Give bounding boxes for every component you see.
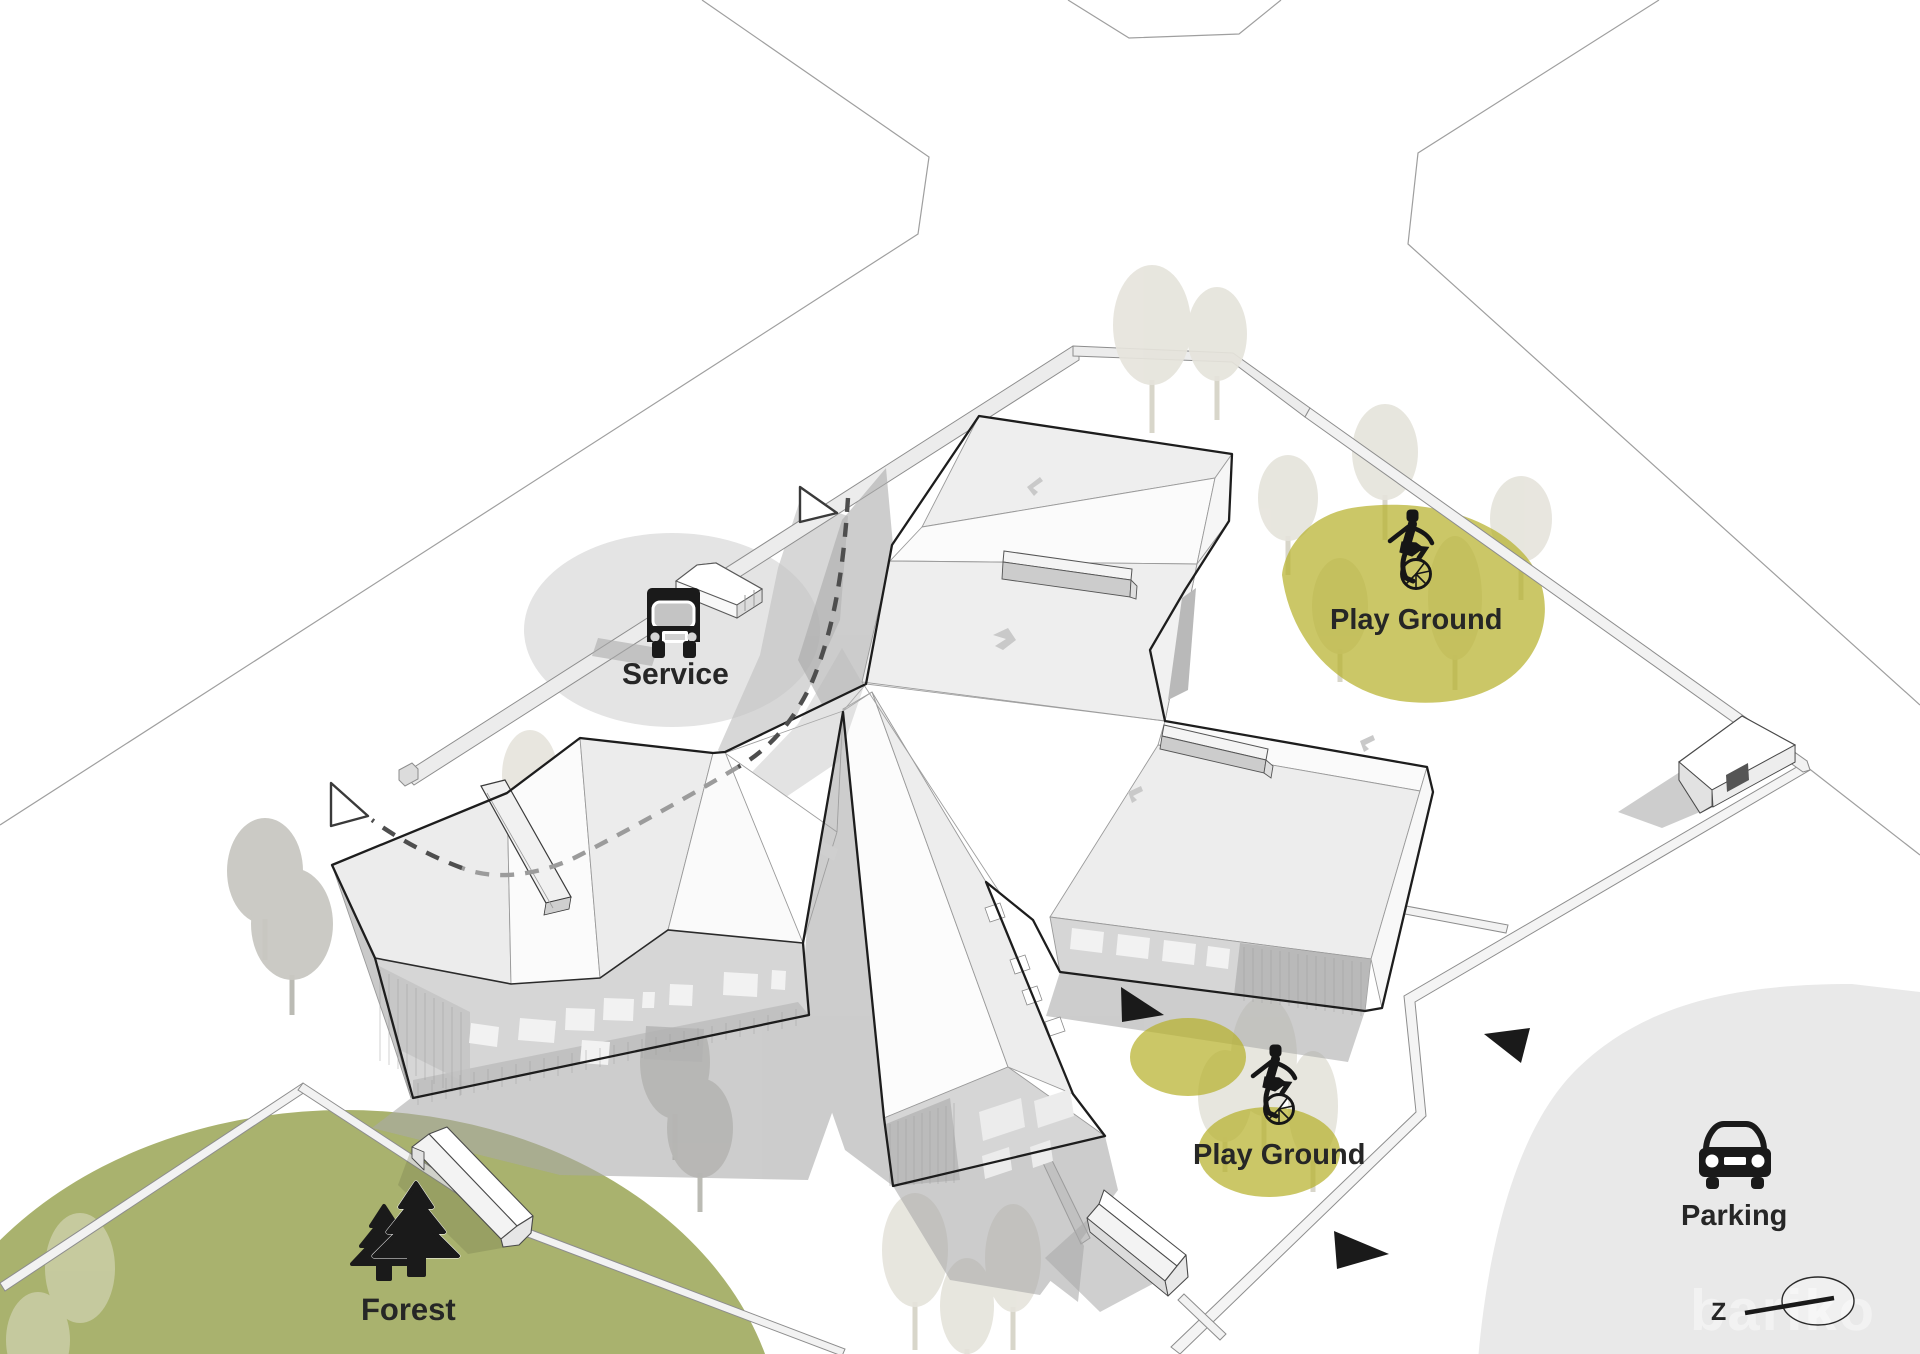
- svg-text:Z: Z: [1711, 1298, 1726, 1326]
- svg-text:Parking: Parking: [1681, 1200, 1787, 1232]
- svg-text:Service: Service: [622, 658, 729, 691]
- svg-text:Play Ground: Play Ground: [1330, 604, 1502, 636]
- svg-text:Forest: Forest: [361, 1292, 456, 1327]
- svg-text:Play Ground: Play Ground: [1193, 1139, 1365, 1171]
